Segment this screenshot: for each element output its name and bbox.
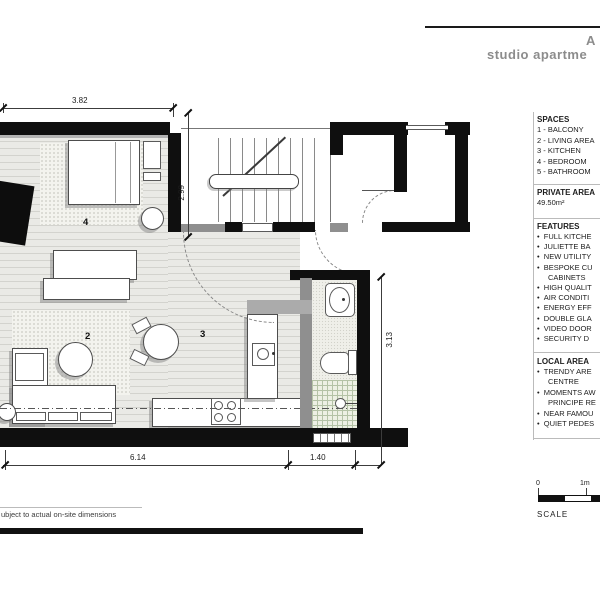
private-area-value: 49.50m² xyxy=(537,198,600,209)
sofa-cushion xyxy=(48,412,78,421)
feature-item: ENERGY EFF xyxy=(537,303,600,313)
wall-segment xyxy=(357,270,370,447)
wall-segment xyxy=(455,135,468,232)
basin-faucet xyxy=(342,298,345,301)
room-label-kitchen: 3 xyxy=(200,329,205,340)
wall-segment xyxy=(363,428,408,447)
scale-label: SCALE xyxy=(537,510,568,519)
bedside-table xyxy=(143,141,161,169)
bed-duvet-line xyxy=(115,142,116,203)
panel-rule xyxy=(533,438,600,439)
bed-headboard-line xyxy=(130,142,131,203)
feature-item: BESPOKE CU xyxy=(537,263,600,273)
panel-rule xyxy=(533,184,600,185)
door-leaf xyxy=(362,190,395,191)
scale-bar-segment xyxy=(538,495,564,502)
feature-item: NEW UTILITY xyxy=(537,252,600,262)
feature-item: JULIETTE BA xyxy=(537,242,600,252)
dimension-line xyxy=(188,113,189,237)
section-title: LOCAL AREA xyxy=(537,356,600,367)
feature-item: FULL KITCHE xyxy=(537,232,600,242)
space-item: 2 - LIVING AREA xyxy=(537,136,600,147)
coffee-table xyxy=(58,342,93,377)
wall-shadow xyxy=(0,135,168,138)
local-area-section: LOCAL AREA TRENDY ARE CENTRE MOMENTS AW … xyxy=(537,356,600,429)
wall-segment xyxy=(168,133,181,232)
local-item: TRENDY ARE xyxy=(537,367,600,377)
vent-grille xyxy=(313,433,351,443)
scale-bar-segment xyxy=(592,495,600,502)
local-item: QUIET PEDES xyxy=(537,419,600,429)
wall-edge-line xyxy=(330,155,331,222)
feature-item-wrap: CABINETS xyxy=(537,273,600,283)
panel-rule xyxy=(533,218,600,219)
wall-segment xyxy=(394,135,407,192)
scale-bar-segment xyxy=(564,495,592,502)
header-rule xyxy=(425,26,600,28)
spaces-section: SPACES 1 - BALCONY 2 - LIVING AREA 3 - K… xyxy=(537,114,600,178)
private-area-section: PRIVATE AREA 49.50m² xyxy=(537,187,600,209)
sink-basin xyxy=(257,348,269,360)
room-label-bedroom: 4 xyxy=(83,217,88,228)
scale-zero-label: 0 xyxy=(536,480,540,487)
footer-rule xyxy=(0,507,142,508)
panel-rule-vertical xyxy=(533,112,534,440)
shower-arm xyxy=(346,403,357,404)
door-swing-arc xyxy=(315,230,361,275)
sideboard xyxy=(43,278,130,300)
project-title-line2: studio apartme xyxy=(487,47,587,62)
dimension-extension xyxy=(355,450,356,470)
scale-tick xyxy=(586,488,587,495)
wall-segment xyxy=(273,222,315,232)
window xyxy=(406,125,448,130)
room-label-living: 2 xyxy=(85,331,90,342)
section-title: SPACES xyxy=(537,114,600,125)
footer-bar xyxy=(0,528,363,534)
stool xyxy=(141,207,164,230)
toilet xyxy=(320,352,349,374)
dimension-tick xyxy=(377,461,385,469)
feature-item: DOUBLE GLA xyxy=(537,314,600,324)
toilet-tank xyxy=(348,350,357,375)
wall-segment xyxy=(330,223,348,232)
dining-table xyxy=(143,324,179,360)
dimension-extension xyxy=(288,450,289,470)
section-title: PRIVATE AREA xyxy=(537,187,600,198)
disclaimer-note: ubject to actual on-site dimensions xyxy=(1,510,116,519)
space-item: 5 - BATHROOM xyxy=(537,167,600,178)
dimension-value: 2.99 xyxy=(177,185,186,201)
wall-segment xyxy=(225,222,242,232)
dimension-value: 3.13 xyxy=(385,332,394,348)
panel-rule xyxy=(533,352,600,353)
project-title-line1: A xyxy=(586,33,595,48)
scale-1m-label: 1m xyxy=(580,480,590,487)
stair-tread xyxy=(314,138,315,222)
space-item: 3 - KITCHEN xyxy=(537,146,600,157)
local-item: MOMENTS AW xyxy=(537,388,600,398)
local-item-wrap: PRINCIPE RE xyxy=(537,398,600,408)
dimension-value: 1.40 xyxy=(310,453,326,462)
sideboard xyxy=(53,250,137,280)
wall-segment xyxy=(0,428,363,447)
dimension-line xyxy=(3,465,381,466)
feature-item: SECURITY D xyxy=(537,334,600,344)
local-item-wrap: CENTRE xyxy=(537,377,600,387)
sofa-cushion xyxy=(80,412,112,421)
hob-burner xyxy=(214,413,223,422)
dimension-line xyxy=(3,108,173,109)
bedside-shelf xyxy=(143,172,161,181)
wall-pier xyxy=(330,135,343,155)
section-title: FEATURES xyxy=(537,221,600,232)
stair-tread xyxy=(302,138,303,222)
scale-tick xyxy=(538,488,539,495)
space-item: 1 - BALCONY xyxy=(537,125,600,136)
sofa-cushion xyxy=(16,412,46,421)
floor-plan-sheet: A studio apartme xyxy=(0,0,600,600)
hob-burner xyxy=(227,413,236,422)
dimension-value: 6.14 xyxy=(130,453,146,462)
features-section: FEATURES FULL KITCHE JULIETTE BA NEW UTI… xyxy=(537,221,600,344)
wall-segment xyxy=(445,122,470,135)
door-threshold xyxy=(242,223,273,232)
washbasin-bowl xyxy=(329,287,350,313)
dimension-value: 3.82 xyxy=(72,96,88,105)
feature-item: HIGH QUALIT xyxy=(537,283,600,293)
dimension-extension xyxy=(5,450,6,470)
stair-opening-edge xyxy=(181,128,330,129)
local-item: NEAR FAMOU xyxy=(537,409,600,419)
space-item: 4 - BEDROOM xyxy=(537,157,600,168)
dimension-line xyxy=(381,277,382,465)
wall-segment xyxy=(330,122,408,135)
feature-item: VIDEO DOOR xyxy=(537,324,600,334)
door-swing-arc xyxy=(362,190,395,223)
sofa-cushion xyxy=(15,353,44,381)
stair-handrail xyxy=(209,174,299,189)
wall-segment xyxy=(247,300,312,314)
sink-faucet xyxy=(272,352,275,355)
wall-segment xyxy=(0,122,170,135)
feature-item: AIR CONDITI xyxy=(537,293,600,303)
